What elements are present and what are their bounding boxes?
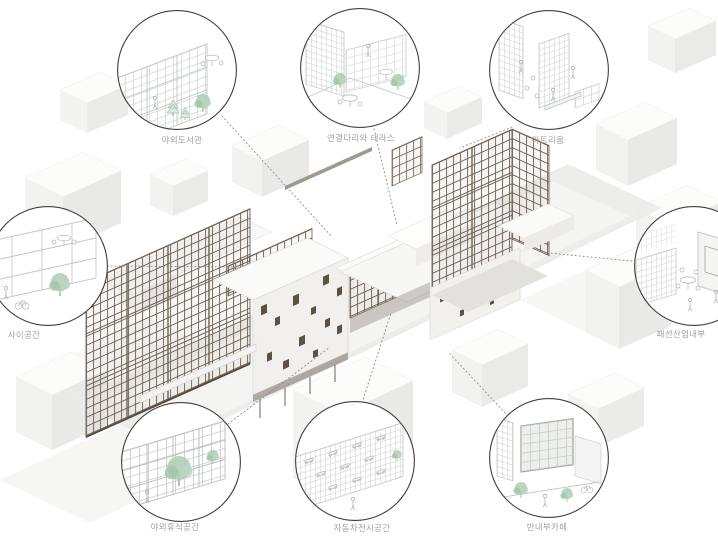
bridge-and-terrace-illustration: [298, 6, 422, 130]
fashion-industry-interior-illustration: [632, 204, 718, 328]
callout-label-outdoor-rest-space: 야외휴식공간: [151, 523, 200, 533]
callout-label-outdoor-library: 야외도서관: [162, 136, 203, 146]
callout-label-car-exhibition-space: 자동차전시공간: [334, 524, 391, 534]
callout-label-bridge-and-terrace: 연결다리와 테라스: [327, 134, 395, 144]
outdoor-library-illustration: [115, 8, 239, 132]
callout-outdoor-rest-space: [119, 400, 243, 524]
callout-atrium: [487, 8, 611, 132]
callout-between-space: [0, 204, 110, 328]
callout-semi-interior-cafe: [487, 396, 611, 520]
callout-bridge-and-terrace: [298, 6, 422, 130]
callout-label-atrium: 아트리움: [532, 136, 564, 146]
semi-interior-cafe-illustration: [487, 396, 611, 520]
callout-label-fashion-industry-interior: 패션산업내부: [657, 330, 706, 340]
callout-fashion-industry-interior: [632, 204, 718, 328]
between-space-illustration: [0, 204, 110, 328]
atrium-illustration: [487, 8, 611, 132]
diagram-canvas: 야외도서관 연결다리와 테라스 아트리움 사이공간 패션산업내부 야외휴식공간 …: [0, 0, 718, 538]
callout-car-exhibition-space: [293, 399, 417, 523]
lattice-mast: [392, 137, 422, 186]
callout-outdoor-library: [115, 8, 239, 132]
outdoor-rest-space-illustration: [119, 400, 243, 524]
callout-label-semi-interior-cafe: 반내부카페: [527, 523, 568, 533]
callout-label-between-space: 사이공간: [8, 331, 40, 341]
car-exhibition-space-illustration: [293, 399, 417, 523]
